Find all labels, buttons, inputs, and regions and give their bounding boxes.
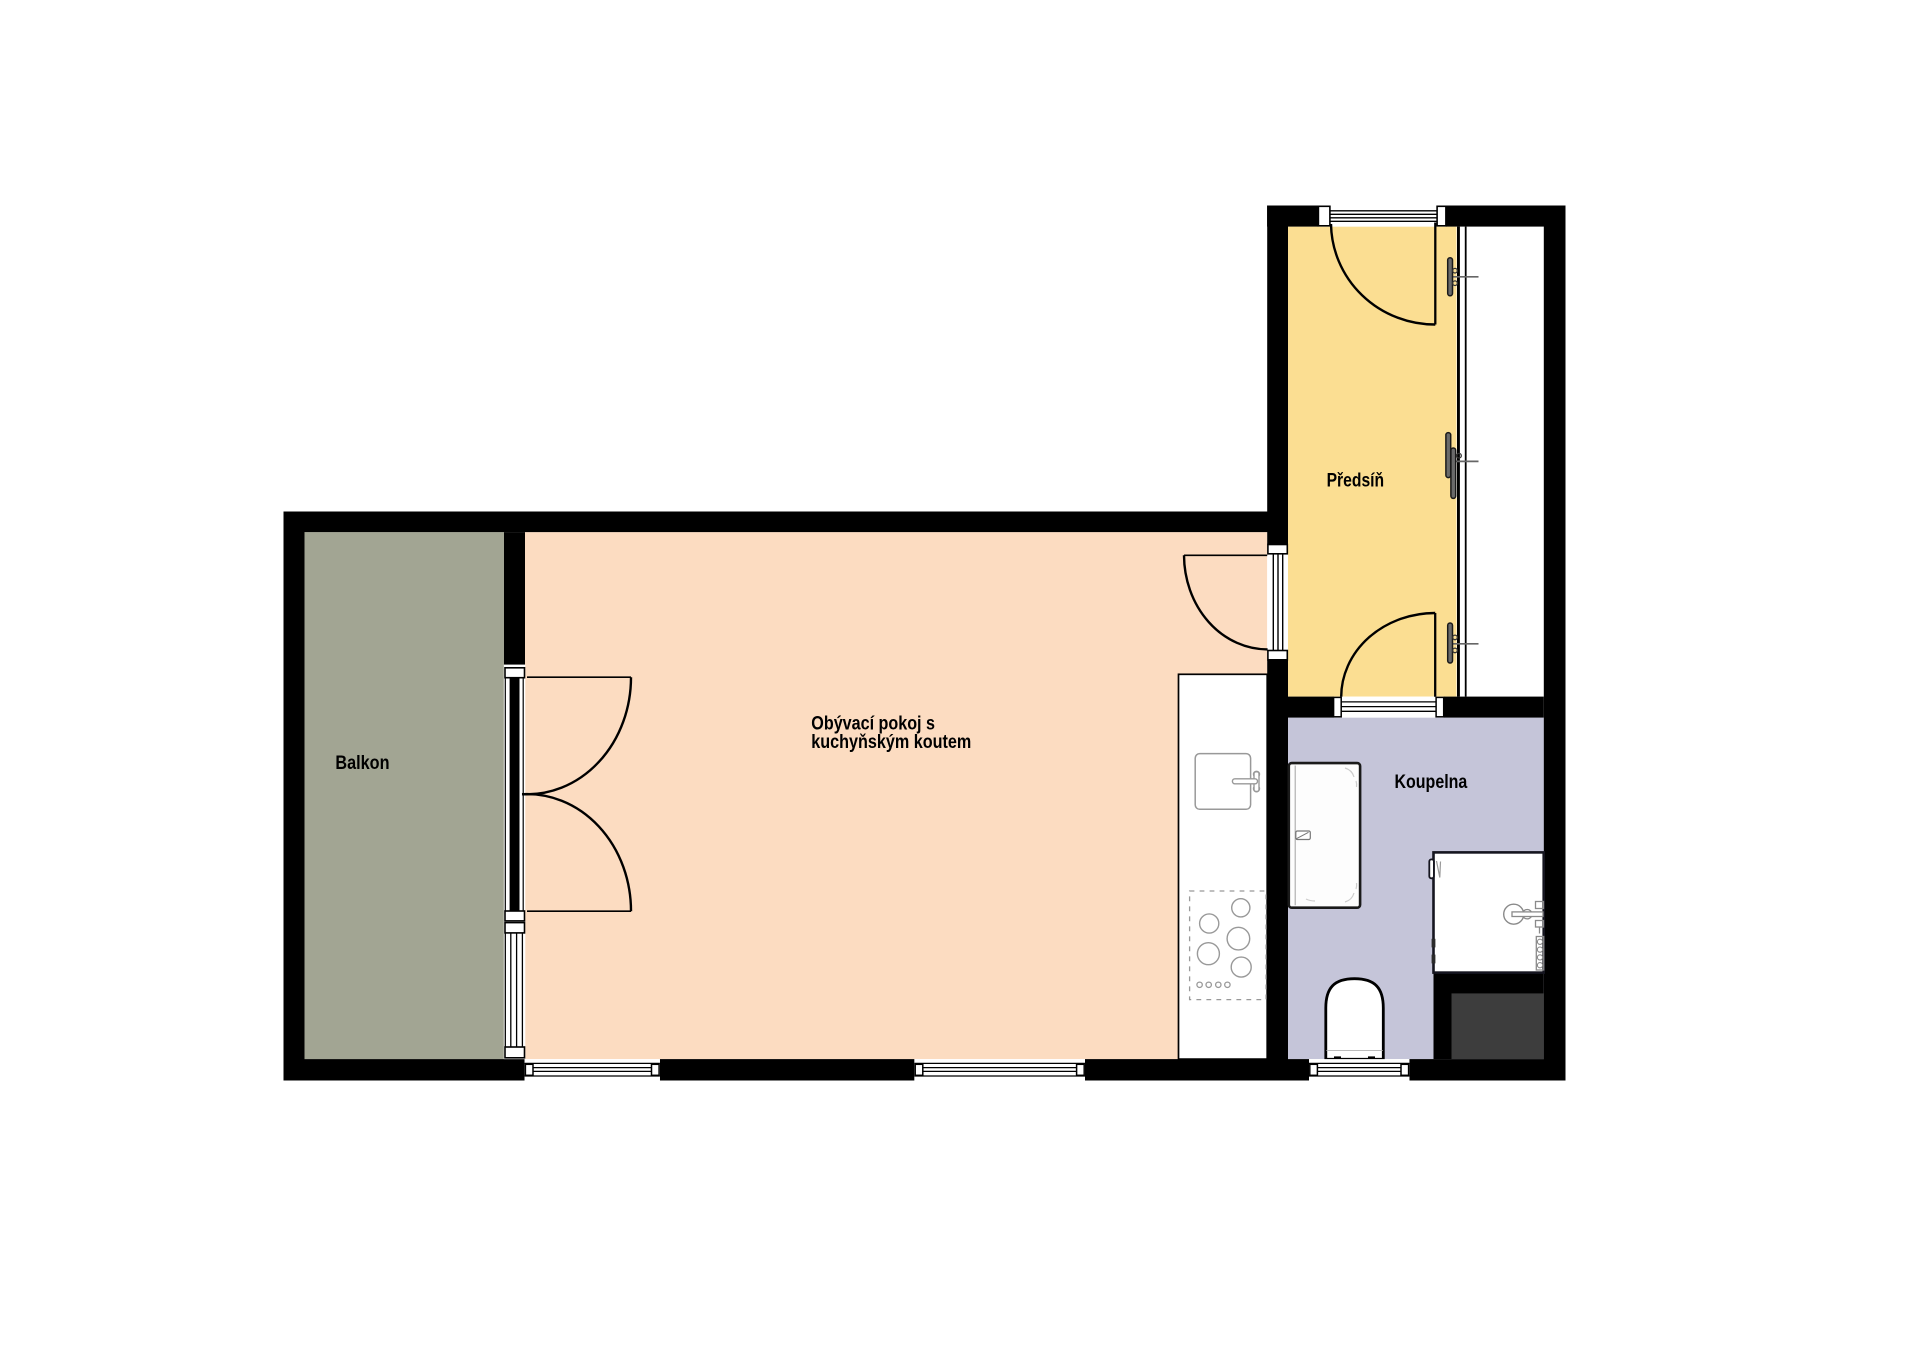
svg-text:Koupelna: Koupelna xyxy=(1395,771,1468,793)
svg-text:Předsíň: Předsíň xyxy=(1327,470,1385,492)
svg-text:kuchyňským koutem: kuchyňským koutem xyxy=(811,731,971,753)
svg-text:Balkon: Balkon xyxy=(335,752,389,774)
